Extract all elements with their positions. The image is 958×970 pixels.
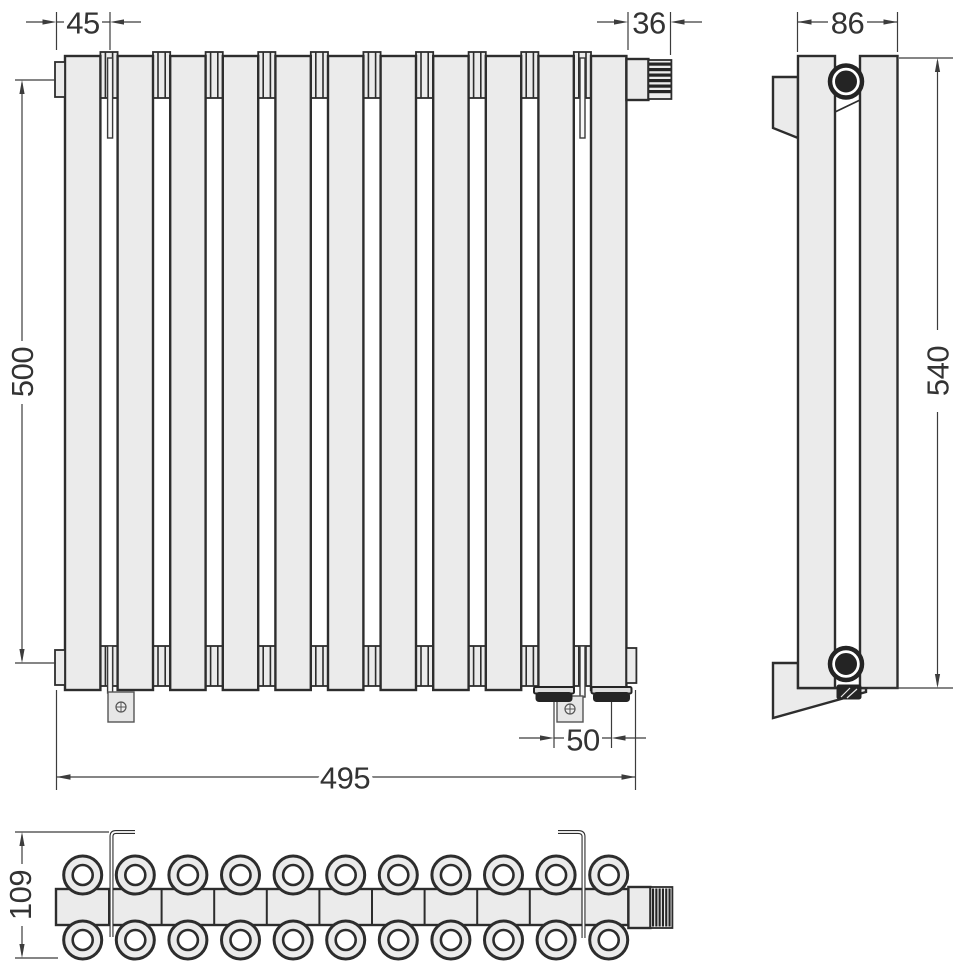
dim-86-label: 86: [831, 6, 864, 41]
radiator-panel: [538, 56, 573, 690]
dimension-500: 500: [5, 80, 56, 663]
radiator-panel: [381, 56, 416, 690]
collar-bottom: [521, 646, 538, 686]
end-cap-top-left: [55, 62, 65, 97]
dim-109-label: 109: [3, 870, 38, 920]
valve-body-front: [626, 59, 648, 100]
tube-ring-inner: [73, 930, 93, 950]
radiator-panel: [328, 56, 363, 690]
radiator-panel: [433, 56, 468, 690]
dimension-45: 45: [26, 6, 141, 51]
tube-ring-inner: [125, 930, 145, 950]
tube-ring-inner: [599, 930, 619, 950]
tube-ring-inner: [73, 865, 93, 885]
collar-top: [206, 52, 223, 98]
tube-ring-inner: [125, 865, 145, 885]
collar-bottom: [416, 646, 433, 686]
radiator-panel: [486, 56, 521, 690]
knurl-rib: [655, 889, 657, 927]
side-column-back: [860, 56, 898, 688]
valve-body-top-view: [628, 887, 650, 928]
end-cap-bottom-right: [626, 648, 636, 683]
tube-ring-inner: [178, 930, 198, 950]
bottom-connection-nut: [592, 687, 632, 702]
collar-bottom: [363, 646, 380, 686]
tube-ring-inner: [231, 930, 251, 950]
collar-top: [153, 52, 170, 98]
knurl-rib: [665, 889, 667, 927]
tube-ring-inner: [599, 865, 619, 885]
dimension-495: 495: [57, 690, 636, 796]
tube-ring-inner: [494, 865, 514, 885]
collar-top: [258, 52, 275, 98]
radiator-panel: [223, 56, 258, 690]
bracket-rod-bottom-left: [108, 646, 113, 693]
tube-ring-inner: [546, 930, 566, 950]
tube-ring-inner: [388, 865, 408, 885]
wall-bracket-top: [773, 77, 798, 138]
knurl-rib: [649, 90, 671, 93]
dim-36-label: 36: [632, 6, 665, 41]
pipe-bore-bottom: [836, 654, 857, 675]
tube-ring-inner: [336, 865, 356, 885]
dim-540-label: 540: [921, 346, 956, 396]
knurl-rib: [649, 74, 671, 77]
knurl-rib: [649, 68, 671, 71]
collar-bottom: [258, 646, 275, 686]
end-cap-bottom-left: [55, 650, 65, 685]
knurl-rib: [652, 889, 654, 927]
dimension-86: 86: [798, 6, 898, 53]
technical-drawing-canvas: 45 36 500 50 495: [0, 0, 958, 970]
collar-bottom: [153, 646, 170, 686]
tube-ring-inner: [441, 865, 461, 885]
collar-top: [416, 52, 433, 98]
top-view: 109: [3, 832, 672, 959]
tube-ring-inner: [546, 865, 566, 885]
bracket-bar-in-slot: [835, 100, 860, 112]
collar-bottom: [469, 646, 486, 686]
radiator-drawing-svg: 45 36 500 50 495: [0, 0, 958, 970]
radiator-panel: [275, 56, 310, 690]
radiator-panels: [65, 56, 626, 690]
tube-ring-inner: [388, 930, 408, 950]
tube-ring-inner: [231, 865, 251, 885]
tube-ring-inner: [336, 930, 356, 950]
dim-50-label: 50: [566, 723, 600, 758]
knurl-rib: [649, 79, 671, 82]
knurl-rib: [649, 63, 671, 66]
bracket-rod-top-left: [108, 58, 113, 138]
knurl-rib: [662, 889, 664, 927]
radiator-panel: [170, 56, 205, 690]
radiator-panel: [591, 56, 626, 690]
collar-top: [521, 52, 538, 98]
tube-ring-inner: [494, 930, 514, 950]
dimension-36: 36: [597, 6, 702, 56]
bottom-connection-nut: [534, 687, 574, 702]
knurl-rib: [669, 889, 671, 927]
collar-bottom: [311, 646, 328, 686]
knurl-rib: [649, 85, 671, 88]
dim-45-label: 45: [66, 6, 99, 41]
collar-top: [363, 52, 380, 98]
tube-ring-inner: [283, 865, 303, 885]
tube-ring-inner: [283, 930, 303, 950]
side-view: 86 540: [773, 6, 956, 719]
collar-top: [469, 52, 486, 98]
knurl-rib: [659, 889, 661, 927]
dim-495-label: 495: [320, 761, 370, 796]
bracket-rod-top-right: [580, 58, 585, 138]
pipe-bore-top: [836, 71, 857, 92]
front-view: 45 36 500 50 495: [5, 6, 702, 796]
side-column-front: [798, 56, 835, 688]
dim-500-label: 500: [5, 347, 40, 397]
radiator-panel: [65, 56, 100, 690]
radiator-panel: [118, 56, 153, 690]
collar-top: [311, 52, 328, 98]
bracket-rod-bottom-right: [580, 646, 585, 697]
tube-ring-inner: [178, 865, 198, 885]
tube-ring-inner: [441, 930, 461, 950]
collar-bottom: [206, 646, 223, 686]
